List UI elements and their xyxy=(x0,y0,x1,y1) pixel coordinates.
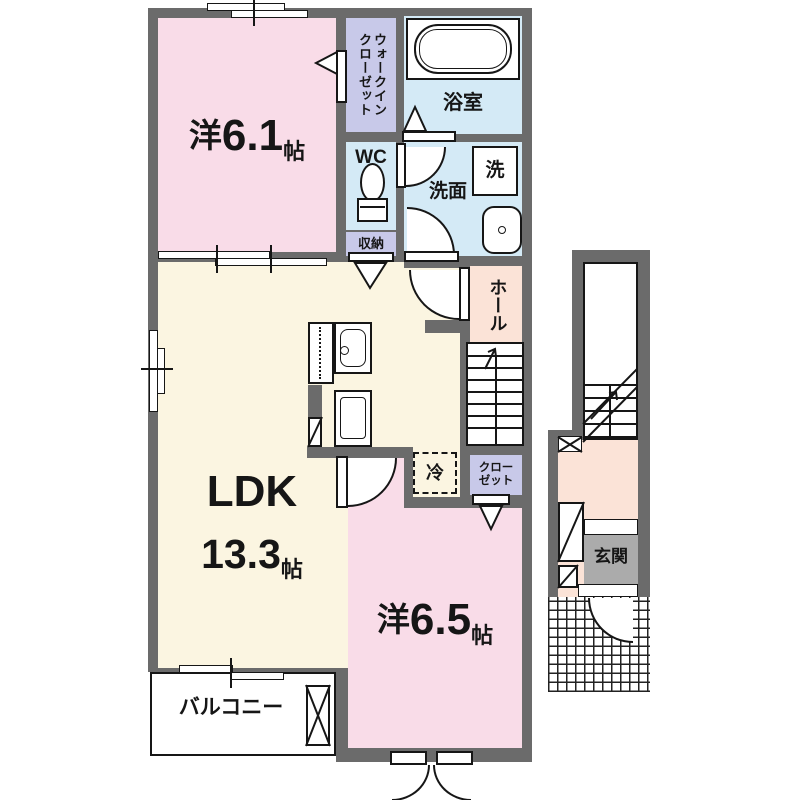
label-entrance: 玄関 xyxy=(584,540,638,574)
label-western-6-5-size: 6.5 xyxy=(410,595,471,646)
label-ldk-size-value: 13.3 xyxy=(201,531,281,578)
stairs-annex-up-arrow xyxy=(591,392,617,419)
label-western-6-5: 洋6.5帖 xyxy=(348,592,522,648)
label-western-6-1-size: 6.1 xyxy=(222,111,283,162)
balcony-x-lines xyxy=(306,685,330,746)
label-western-6-5-prefix: 洋 xyxy=(377,601,410,639)
label-bathroom: 浴室 xyxy=(404,90,522,116)
label-western-6-5-unit: 帖 xyxy=(471,623,493,648)
label-balcony: バルコニー xyxy=(156,692,306,724)
label-storage: 収納 xyxy=(346,233,396,255)
label-wc: WC xyxy=(346,146,396,170)
label-ldk: LDK xyxy=(162,462,342,522)
label-hall: ホール xyxy=(472,268,522,342)
shoe-cabinet-small-diagonal xyxy=(558,565,578,588)
stairs-main-up-arrow xyxy=(485,349,496,369)
label-refrigerator: 冷 xyxy=(413,452,457,494)
stairs-annex-diagonals xyxy=(583,369,637,442)
label-closet: クロー ゼット xyxy=(470,456,522,494)
pillar-x-lines xyxy=(558,437,582,452)
label-ldk-size-unit: 帖 xyxy=(281,557,303,582)
closet-arrow-icon xyxy=(480,506,502,529)
storage-arrow-icon xyxy=(355,263,386,288)
floor-plan: 洋6.1帖 ウォークイン クローゼット 浴室 WC 洗 洗面 収納 ホール LD… xyxy=(0,0,800,800)
label-washroom: 洗面 xyxy=(406,180,490,204)
shoe-cabinet-diagonal xyxy=(558,502,584,562)
label-western-6-1-unit: 帖 xyxy=(283,139,305,164)
symbols-overlay xyxy=(0,0,800,800)
wic-door-triangle-icon xyxy=(316,52,337,74)
label-western-6-1-prefix: 洋 xyxy=(189,117,222,155)
label-western-6-1: 洋6.1帖 xyxy=(158,108,336,164)
label-ldk-size: 13.3帖 xyxy=(162,528,342,582)
kitchen-stub-diagonal xyxy=(308,417,322,447)
label-walk-in-closet: ウォークイン クローゼット xyxy=(347,22,395,128)
